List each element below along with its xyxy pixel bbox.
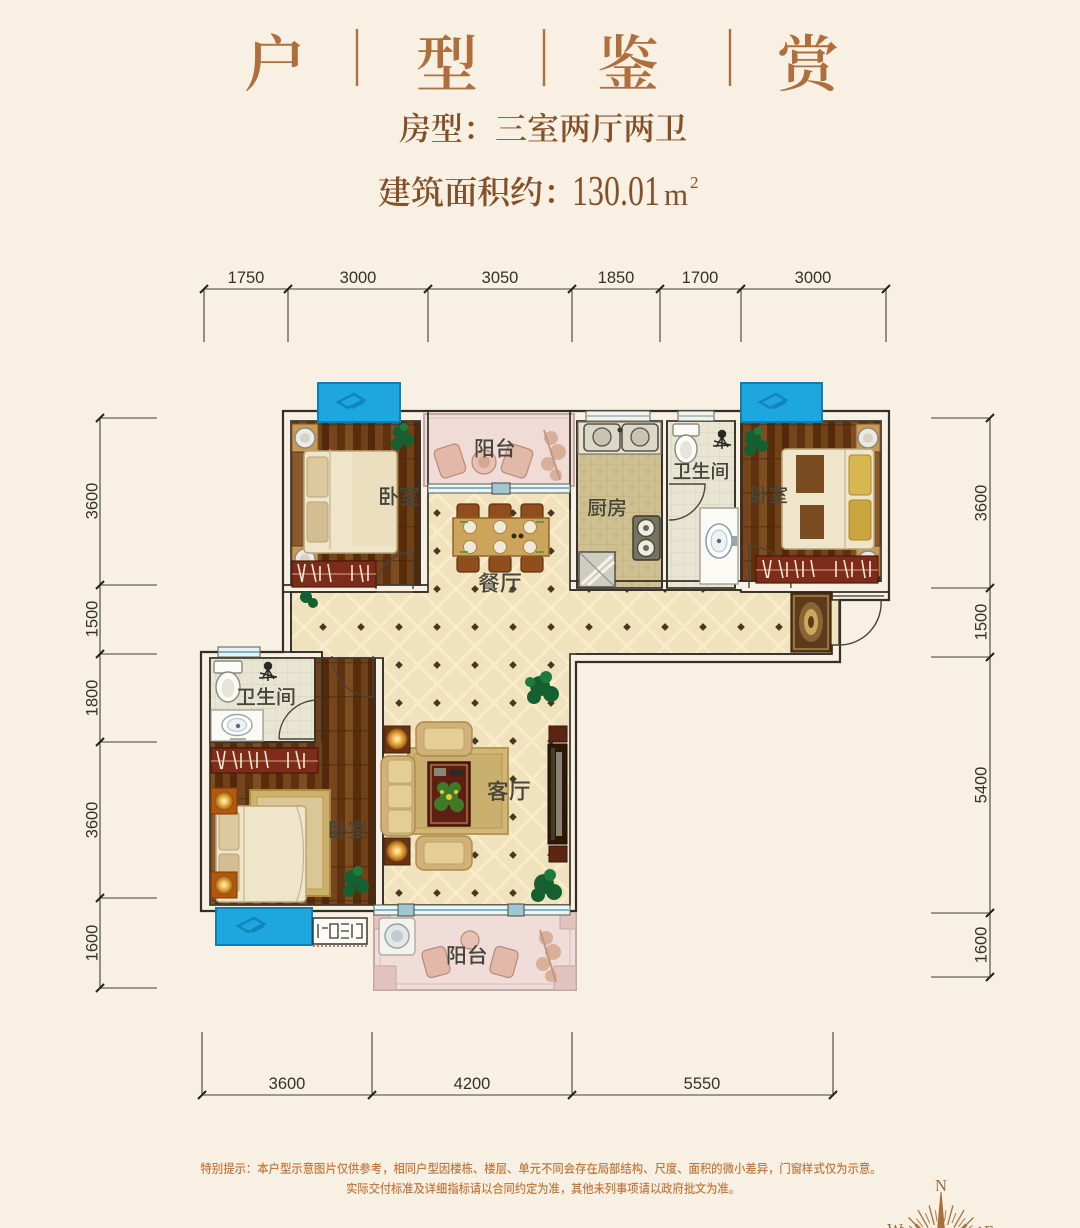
svg-text:鉴: 鉴 — [597, 15, 659, 104]
svg-text:3600: 3600 — [972, 485, 990, 522]
svg-text:实际交付标准及详细指标请以合同约定为准，其他未列事项请以政府: 实际交付标准及详细指标请以合同约定为准，其他未列事项请以政府批文为准。 — [346, 1178, 740, 1197]
svg-text:建筑面积约：: 建筑面积约： — [378, 167, 576, 214]
svg-text:5550: 5550 — [684, 1075, 721, 1093]
svg-text:房型：三室两厅两卫: 房型：三室两厅两卫 — [399, 104, 687, 150]
svg-text:3600: 3600 — [269, 1075, 306, 1093]
svg-text:3000: 3000 — [340, 269, 377, 287]
svg-text:餐厅: 餐厅 — [478, 566, 522, 598]
svg-text:3000: 3000 — [795, 269, 832, 287]
svg-text:m: m — [664, 177, 688, 212]
svg-text:1850: 1850 — [598, 269, 635, 287]
svg-text:阳台: 阳台 — [446, 940, 488, 970]
svg-text:赏: 赏 — [777, 15, 839, 104]
svg-text:卧室: 卧室 — [378, 481, 420, 511]
svg-text:1500: 1500 — [83, 601, 101, 638]
svg-text:1700: 1700 — [682, 269, 719, 287]
svg-text:卫生间: 卫生间 — [672, 457, 729, 484]
svg-text:1750: 1750 — [228, 269, 265, 287]
svg-text:3600: 3600 — [83, 483, 101, 520]
svg-text:户: 户 — [244, 15, 306, 104]
svg-text:特别提示：本户型示意图片仅供参考，相同户型因楼栋、楼层、单元: 特别提示：本户型示意图片仅供参考，相同户型因楼栋、楼层、单元不同会存在局部结构、… — [201, 1158, 882, 1177]
svg-text:卫生间: 卫生间 — [236, 681, 296, 710]
svg-text:2: 2 — [690, 173, 699, 192]
svg-text:1600: 1600 — [972, 927, 990, 964]
svg-text:130.01: 130.01 — [572, 169, 660, 215]
svg-text:阳台: 阳台 — [474, 433, 516, 463]
svg-text:卧室: 卧室 — [750, 481, 788, 508]
svg-text:N: N — [935, 1176, 947, 1195]
svg-text:4200: 4200 — [454, 1075, 491, 1093]
svg-text:W: W — [887, 1220, 903, 1228]
svg-text:1500: 1500 — [972, 604, 990, 641]
svg-text:卧室: 卧室 — [328, 814, 368, 843]
svg-text:3050: 3050 — [482, 269, 519, 287]
svg-text:1600: 1600 — [83, 925, 101, 962]
svg-text:E: E — [984, 1222, 994, 1228]
svg-text:厨房: 厨房 — [587, 492, 627, 521]
svg-text:1800: 1800 — [83, 680, 101, 717]
svg-text:5400: 5400 — [972, 767, 990, 804]
svg-text:3600: 3600 — [83, 802, 101, 839]
svg-text:客厅: 客厅 — [487, 774, 531, 806]
svg-text:型: 型 — [416, 15, 478, 104]
